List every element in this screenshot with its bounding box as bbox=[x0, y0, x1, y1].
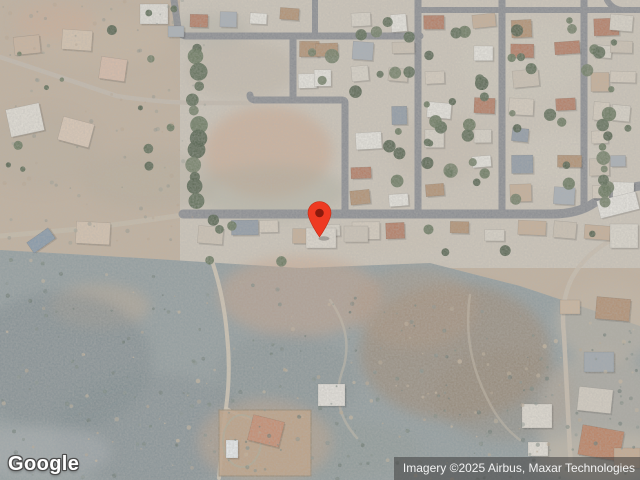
pin-shadow bbox=[319, 236, 330, 240]
google-logo[interactable]: Google bbox=[8, 453, 79, 476]
map-pin-icon[interactable] bbox=[299, 194, 341, 242]
attribution-text: Imagery ©2025 Airbus, Maxar Technologies bbox=[403, 461, 635, 475]
google-logo-text: Google bbox=[8, 453, 79, 475]
map-viewport[interactable]: Google Imagery ©2025 Airbus, Maxar Techn… bbox=[0, 0, 640, 480]
attribution-bar: Imagery ©2025 Airbus, Maxar Technologies bbox=[394, 457, 640, 480]
pin-body bbox=[308, 202, 331, 238]
pin-dot bbox=[315, 209, 324, 218]
